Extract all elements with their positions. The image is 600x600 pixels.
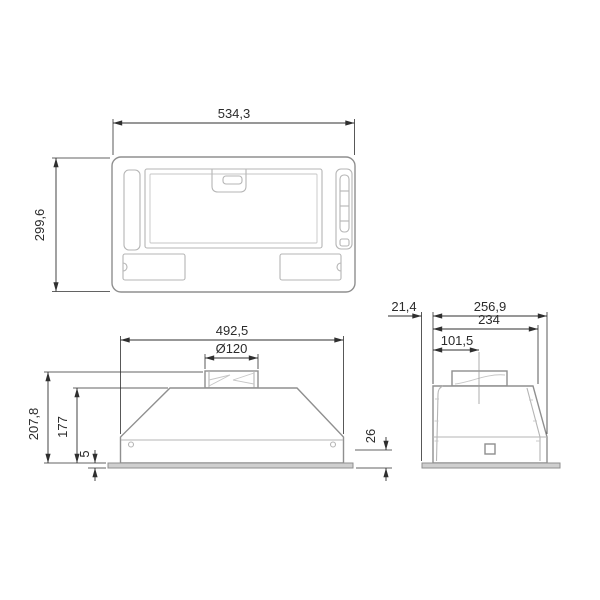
bottom-flange (108, 463, 353, 468)
side-view: 21,4 256,9 234 101,5 (388, 299, 560, 468)
hood-top-outline (112, 157, 355, 292)
front-view: 492,5 Ø120 207,8 177 5 (26, 323, 392, 481)
dim-duct-diameter: Ø120 (205, 341, 258, 369)
dim-label-flange-overhang: 21,4 (391, 299, 416, 314)
dim-label-front-width: 492,5 (216, 323, 249, 338)
damper-flap-side (455, 375, 505, 384)
top-view: 534,3 299,6 (32, 106, 355, 292)
dim-label-height-body: 177 (55, 416, 70, 438)
hood-front-outline (121, 388, 344, 463)
dim-label-base-band: 26 (363, 429, 378, 443)
dim-label-top-depth: 299,6 (32, 209, 47, 242)
dim-label-depth-top: 234 (478, 312, 500, 327)
dim-label-duct-diameter: Ø120 (216, 341, 248, 356)
dimension-drawing: 534,3 299,6 492,5 Ø120 (0, 0, 600, 600)
dimension-drawing-page: 534,3 299,6 492,5 Ø120 (0, 0, 600, 600)
dim-label-flange-height: 5 (77, 450, 92, 457)
dim-top-depth: 299,6 (32, 158, 110, 292)
dim-depth-top: 234 (433, 312, 538, 384)
dim-base-band: 26 (355, 429, 392, 481)
dim-label-top-width: 534,3 (218, 106, 251, 121)
dim-duct-center-offset: 101,5 (433, 333, 479, 350)
bottom-flange-side (422, 463, 560, 468)
dim-label-duct-center-offset: 101,5 (441, 333, 474, 348)
dim-top-width: 534,3 (113, 106, 355, 155)
dim-flange-overhang: 21,4 (388, 299, 422, 461)
damper-flap (209, 375, 230, 386)
dim-flange-height: 5 (77, 450, 106, 481)
damper-flap (233, 373, 254, 384)
dim-label-height-total: 207,8 (26, 408, 41, 441)
